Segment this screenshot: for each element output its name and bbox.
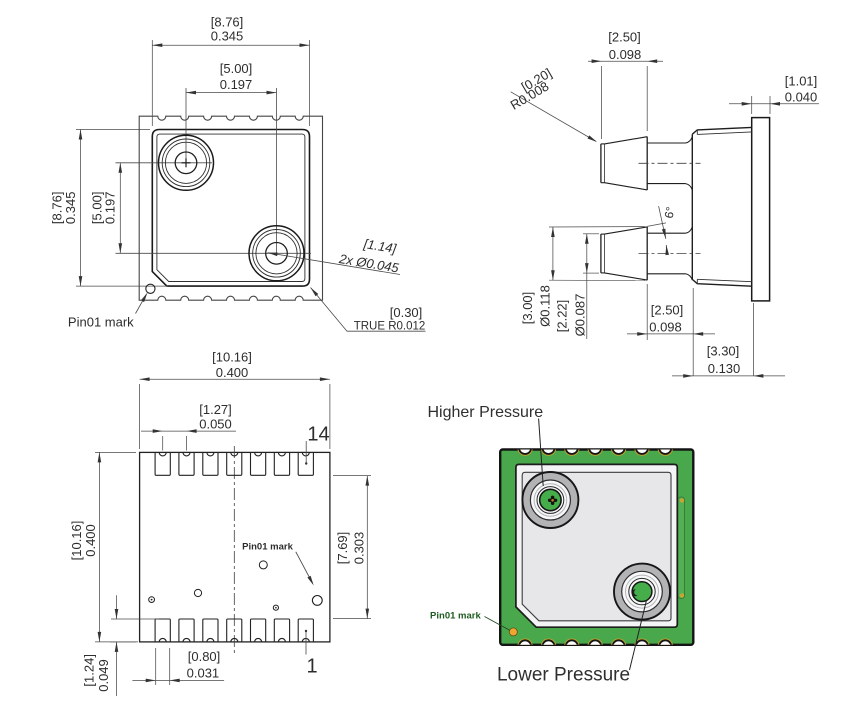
svg-text:[2.50]: [2.50] [651,303,684,318]
svg-text:0.040: 0.040 [785,90,818,105]
svg-text:0.098: 0.098 [609,47,642,62]
svg-text:[7.69]: [7.69] [335,532,350,565]
svg-text:[3.30]: [3.30] [707,344,740,359]
svg-text:0.130: 0.130 [708,361,741,376]
svg-text:[8.76]: [8.76] [211,15,244,30]
svg-text:6°: 6° [662,205,678,219]
svg-text:0.031: 0.031 [187,666,220,681]
svg-text:0.303: 0.303 [352,532,367,565]
svg-text:0.400: 0.400 [83,524,98,557]
svg-text:Ø0.118: Ø0.118 [538,285,553,327]
svg-text:0.345: 0.345 [63,192,78,225]
svg-text:0.049: 0.049 [96,659,111,692]
svg-text:0.197: 0.197 [220,77,253,92]
svg-text:Pin01 mark: Pin01 mark [68,315,134,330]
svg-text:Ø0.087: Ø0.087 [573,294,588,337]
svg-text:0.098: 0.098 [649,320,682,335]
svg-text:0.400: 0.400 [216,365,249,380]
svg-text:[10.16]: [10.16] [69,521,84,561]
svg-text:[1.24]: [1.24] [82,654,97,687]
svg-text:[5.00]: [5.00] [220,61,253,76]
svg-text:0.197: 0.197 [103,192,118,225]
svg-text:1: 1 [306,656,317,678]
svg-text:TRUE R0.012: TRUE R0.012 [354,321,426,333]
svg-text:0.050: 0.050 [199,417,232,432]
svg-text:[3.00]: [3.00] [520,292,535,325]
svg-text:[1.01]: [1.01] [785,74,818,89]
svg-text:14: 14 [307,424,329,446]
svg-text:Higher Pressure: Higher Pressure [427,404,543,421]
svg-text:Lower Pressure: Lower Pressure [497,665,630,686]
svg-text:[2.50]: [2.50] [608,30,641,45]
svg-text:[1.14]: [1.14] [362,236,398,256]
svg-text:0.345: 0.345 [211,29,244,44]
svg-text:[0.80]: [0.80] [188,649,221,664]
svg-text:[0.30]: [0.30] [390,305,423,320]
svg-text:Pin01 mark: Pin01 mark [242,542,293,553]
svg-text:[1.27]: [1.27] [199,402,232,417]
svg-text:[10.16]: [10.16] [212,350,252,365]
svg-text:Pin01 mark: Pin01 mark [430,610,481,621]
svg-text:[2.22]: [2.22] [555,300,570,333]
